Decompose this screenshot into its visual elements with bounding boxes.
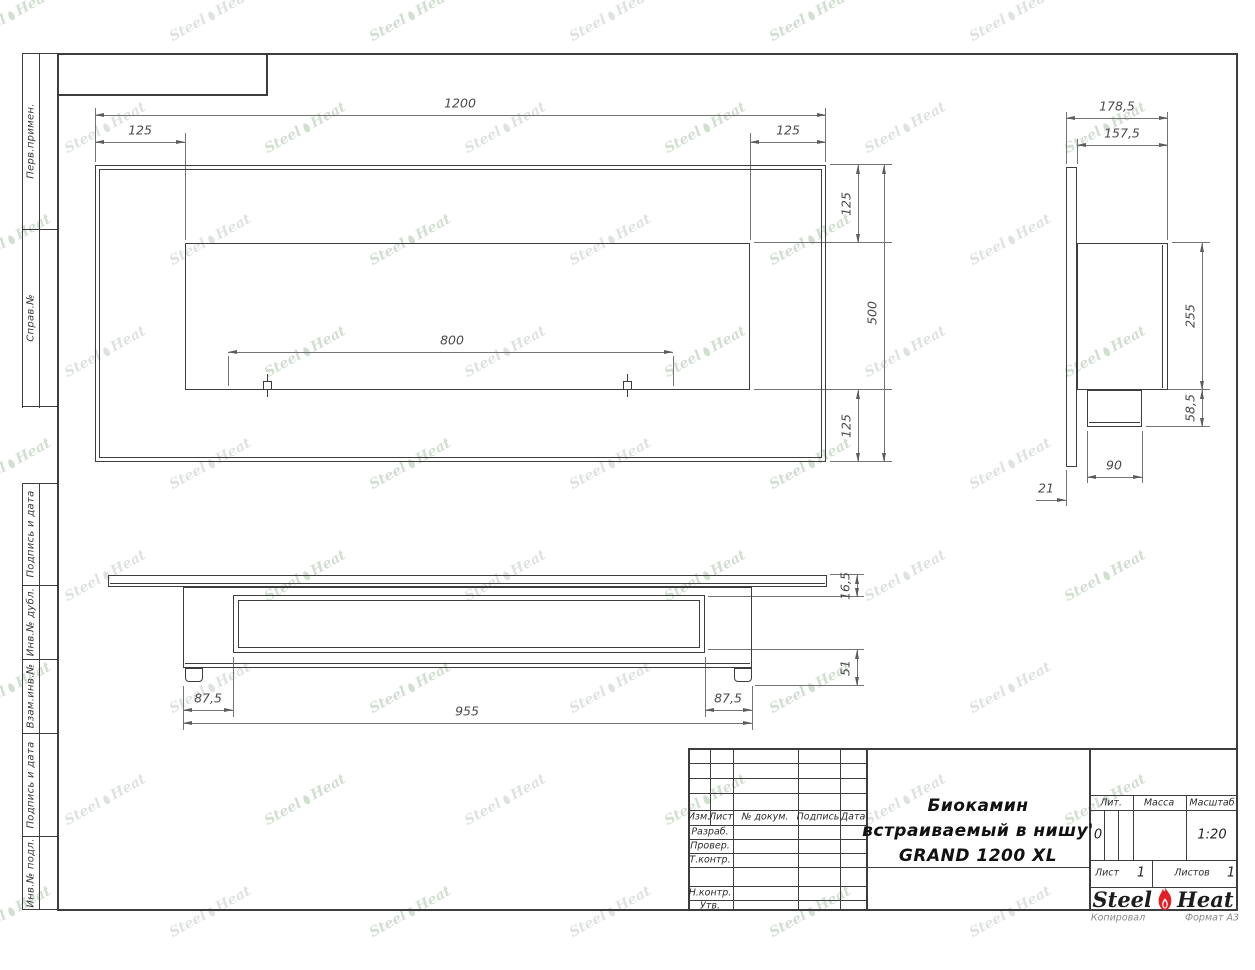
watermark: SteelHeat (662, 99, 749, 157)
watermark-flame-icon (899, 792, 913, 807)
watermark-flame-icon (1004, 904, 1018, 919)
tb-role-razrab: Разраб. (691, 827, 728, 838)
drawing-line (1090, 810, 1238, 811)
watermark-flame-icon (604, 8, 618, 23)
watermark: SteelHeat (967, 883, 1054, 941)
drawing-line (22, 53, 23, 408)
watermark-text-steel: Steel (767, 908, 809, 941)
dimension-arrow (1200, 390, 1204, 399)
flame-icon (1155, 886, 1174, 912)
tb-role-nkontr: Н.контр. (689, 888, 732, 899)
watermark-text-heat: Heat (908, 99, 949, 131)
drawing-line (733, 748, 734, 911)
watermark-text-heat: Heat (508, 771, 549, 803)
margin-label-vzam-inv: Взам.инв.№ (26, 664, 37, 729)
extension-line (1172, 242, 1210, 243)
margin-label-inv-dubl: Инв.№ дубл. (26, 588, 37, 657)
drawing-line (688, 867, 1090, 868)
dimension-line (183, 723, 752, 724)
drawing-line (57, 53, 1238, 55)
tb-sheets-value: 1 (1227, 866, 1235, 881)
margin-label-perv-primen: Перв.примен. (26, 103, 37, 179)
watermark-flame-icon (699, 120, 713, 135)
watermark-text-heat: Heat (1108, 547, 1149, 579)
drawing-line (22, 406, 58, 407)
watermark-flame-icon (4, 232, 18, 247)
dimension-label: 500 (865, 301, 880, 325)
dimension-arrow (1133, 475, 1142, 479)
watermark-text-heat: Heat (13, 435, 54, 467)
watermark-text-steel: Steel (1062, 572, 1104, 605)
drawing-line (22, 483, 58, 484)
logo-text-steel: Steel (1092, 887, 1152, 912)
watermark-text-steel: Steel (367, 684, 409, 717)
watermark-flame-icon (4, 904, 18, 919)
watermark-flame-icon (404, 680, 418, 695)
watermark-text-steel: Steel (967, 12, 1009, 45)
tb-sheet-label: Лист (1095, 868, 1119, 879)
dimension-line (1066, 118, 1168, 119)
watermark-text-steel: Steel (167, 12, 209, 45)
tb-mass-label: Масса (1144, 798, 1174, 809)
watermark: SteelHeat (967, 211, 1054, 269)
drawing-line (39, 53, 40, 408)
watermark-text-heat: Heat (1013, 0, 1054, 19)
watermark-text-steel: Steel (862, 572, 904, 605)
watermark: SteelHeat (862, 547, 949, 605)
extension-line (1066, 470, 1067, 506)
drawing-line (1104, 810, 1105, 860)
tb-header-izm: Изм. (688, 812, 710, 823)
drawing-line (22, 585, 58, 586)
part-outline (263, 381, 272, 390)
tb-lit-value: 0 (1094, 828, 1102, 843)
watermark-text-steel: Steel (62, 796, 104, 829)
dimension-arrow (224, 708, 233, 712)
drawing-line (22, 836, 58, 837)
watermark-text-heat: Heat (1013, 659, 1054, 691)
watermark: SteelHeat (367, 0, 454, 45)
watermark-text-heat: Heat (708, 771, 749, 803)
drawing-sheet: SteelHeatSteelHeatSteelHeatSteelHeatStee… (0, 0, 1255, 970)
dimension-arrow (95, 140, 104, 144)
dimension-label: 87,5 (194, 691, 222, 706)
watermark-text-heat: Heat (13, 0, 54, 19)
watermark-text-heat: Heat (108, 771, 149, 803)
dimension-arrow (855, 677, 859, 686)
dimension-label: 1200 (444, 96, 476, 111)
watermark-text-heat: Heat (813, 0, 854, 19)
watermark-text-steel: Steel (567, 684, 609, 717)
drawing-line (22, 909, 58, 910)
drawing-line (22, 659, 58, 660)
part-outline (1087, 390, 1142, 427)
watermark: SteelHeat (1062, 547, 1149, 605)
watermark-flame-icon (499, 120, 513, 135)
margin-label-inv-podl: Инв.№ подл. (26, 838, 37, 907)
watermark-text-steel: Steel (767, 12, 809, 45)
dimension-arrow (856, 390, 860, 399)
dimension-arrow (1159, 116, 1168, 120)
dimension-line (858, 165, 859, 243)
drawing-line (840, 748, 841, 911)
dimension-arrow (817, 113, 826, 117)
part-outline (623, 381, 632, 390)
drawing-line (266, 53, 268, 96)
drawing-line (1152, 860, 1153, 887)
watermark-flame-icon (204, 8, 218, 23)
watermark-text-steel: Steel (0, 460, 9, 493)
watermark-flame-icon (99, 792, 113, 807)
dimension-arrow (855, 588, 859, 597)
drawing-line (57, 53, 59, 911)
watermark: SteelHeat (967, 0, 1054, 45)
watermark-text-steel: Steel (0, 684, 9, 717)
dimension-arrow (1159, 143, 1168, 147)
dimension-line (884, 165, 885, 462)
watermark: SteelHeat (862, 99, 949, 157)
watermark-text-steel: Steel (1062, 124, 1104, 157)
tb-role-tkontr: Т.контр. (689, 855, 730, 866)
dimension-arrow (1087, 475, 1096, 479)
extension-line (1167, 112, 1168, 240)
watermark-flame-icon (1004, 232, 1018, 247)
watermark-flame-icon (1099, 568, 1113, 583)
watermark: SteelHeat (0, 0, 54, 45)
watermark-text-steel: Steel (567, 460, 609, 493)
watermark-text-heat: Heat (1013, 211, 1054, 243)
dimension-label: 255 (1183, 304, 1198, 328)
drawing-line (1090, 860, 1238, 861)
extension-line (755, 685, 864, 686)
tb-sheet-value: 1 (1137, 866, 1145, 881)
watermark-text-steel: Steel (367, 460, 409, 493)
dimension-label: 21 (1038, 481, 1054, 496)
dimension-arrow (750, 140, 759, 144)
watermark: SteelHeat (167, 883, 254, 941)
drawing-line (1236, 53, 1238, 911)
extension-line (752, 686, 753, 730)
dimension-line (858, 390, 859, 462)
dimension-arrow (817, 140, 826, 144)
watermark: SteelHeat (262, 99, 349, 157)
dimension-arrow (183, 708, 192, 712)
part-outline (1066, 167, 1077, 467)
watermark: SteelHeat (567, 0, 654, 45)
dimension-label: 178,5 (1099, 99, 1135, 114)
watermark-flame-icon (299, 120, 313, 135)
dimension-arrow (1077, 143, 1086, 147)
watermark-text-steel: Steel (862, 124, 904, 157)
tb-header-ndokum: № докум. (742, 812, 789, 823)
watermark-text-heat: Heat (13, 211, 54, 243)
watermark-text-steel: Steel (367, 908, 409, 941)
watermark: SteelHeat (0, 211, 54, 269)
watermark: SteelHeat (967, 659, 1054, 717)
dimension-line (1077, 145, 1168, 146)
watermark: SteelHeat (767, 0, 854, 45)
dimension-arrow (743, 708, 752, 712)
drawing-line (22, 53, 58, 54)
dimension-arrow (1066, 116, 1075, 120)
watermark-text-steel: Steel (967, 236, 1009, 269)
watermark-text-steel: Steel (567, 12, 609, 45)
dimension-arrow (855, 575, 859, 584)
drawing-line (688, 778, 868, 779)
part-outline (734, 668, 752, 682)
drawing-line (1186, 795, 1187, 860)
part-outline (185, 243, 750, 390)
dimension-arrow (228, 350, 237, 354)
footer-copied: Копировал (1091, 913, 1145, 924)
watermark-flame-icon (4, 456, 18, 471)
watermark-text-steel: Steel (167, 460, 209, 493)
watermark-text-steel: Steel (262, 124, 304, 157)
part-outline (1077, 243, 1168, 390)
dimension-arrow (856, 453, 860, 462)
watermark-text-heat: Heat (613, 0, 654, 19)
watermark-flame-icon (99, 120, 113, 135)
dimension-label: 125 (776, 123, 800, 138)
tb-role-utv: Утв. (700, 901, 720, 912)
drawing-line (22, 733, 58, 734)
watermark-flame-icon (1004, 8, 1018, 23)
watermark: SteelHeat (262, 771, 349, 829)
watermark-text-steel: Steel (167, 908, 209, 941)
watermark-flame-icon (899, 344, 913, 359)
dimension-arrow (882, 165, 886, 174)
dimension-label: 955 (455, 704, 479, 719)
dimension-arrow (183, 721, 192, 725)
watermark-text-steel: Steel (567, 908, 609, 941)
part-outline (238, 600, 700, 648)
dimension-arrow (1200, 381, 1204, 390)
watermark-text-steel: Steel (767, 684, 809, 717)
dimension-arrow (705, 708, 714, 712)
watermark-flame-icon (899, 120, 913, 135)
watermark-text-steel: Steel (967, 908, 1009, 941)
tb-lit-label: Лит. (1100, 798, 1122, 809)
dimension-arrow (856, 234, 860, 243)
watermark: SteelHeat (0, 435, 54, 493)
drawing-line (22, 483, 23, 910)
watermark-flame-icon (804, 904, 818, 919)
watermark-flame-icon (204, 904, 218, 919)
watermark-text-steel: Steel (262, 796, 304, 829)
dimension-label: 800 (440, 333, 464, 348)
tb-scale-label: Масштаб (1189, 798, 1234, 809)
watermark: SteelHeat (862, 323, 949, 381)
watermark-text-steel: Steel (462, 124, 504, 157)
watermark-flame-icon (804, 8, 818, 23)
watermark-text-steel: Steel (0, 12, 9, 45)
watermark-text-heat: Heat (908, 547, 949, 579)
watermark-flame-icon (4, 8, 18, 23)
dimension-arrow (176, 140, 185, 144)
watermark-flame-icon (804, 680, 818, 695)
drawing-line (22, 229, 58, 230)
doc-title-line-3: GRAND 1200 XL (899, 846, 1057, 866)
dimension-line (95, 142, 185, 143)
tb-header-podpis: Подпись (797, 812, 840, 823)
dimension-arrow (1200, 418, 1204, 427)
drawing-line (688, 748, 1238, 750)
dimension-label: 16,5 (838, 572, 853, 600)
dimension-line (1202, 243, 1203, 390)
watermark-flame-icon (899, 568, 913, 583)
doc-title-line-1: Биокамин (927, 796, 1028, 816)
tb-header-list: Лист (709, 812, 733, 823)
watermark-flame-icon (299, 792, 313, 807)
watermark-text-heat: Heat (908, 323, 949, 355)
dimension-arrow (855, 650, 859, 659)
dimension-arrow (856, 165, 860, 174)
watermark-text-heat: Heat (413, 0, 454, 19)
watermark-text-steel: Steel (967, 460, 1009, 493)
dimension-arrow (1200, 243, 1204, 252)
watermark: SteelHeat (167, 0, 254, 45)
watermark-flame-icon (604, 680, 618, 695)
steelheat-logo: Steel Heat (1092, 886, 1233, 912)
dimension-line (95, 115, 826, 116)
dimension-line (750, 142, 826, 143)
watermark: SteelHeat (367, 883, 454, 941)
dimension-label: 58,5 (1183, 394, 1198, 422)
dimension-arrow (882, 453, 886, 462)
margin-label-podpis-data-2: Подпись и дата (26, 741, 37, 828)
drawing-line (39, 483, 40, 910)
drawing-line (1090, 795, 1238, 796)
dimension-label: 125 (839, 192, 854, 216)
extension-line (1142, 431, 1143, 483)
watermark-flame-icon (404, 904, 418, 919)
dimension-label: 90 (1106, 458, 1122, 473)
footer-format: Формат А3 (1185, 913, 1239, 924)
tb-scale-value: 1:20 (1197, 828, 1226, 843)
tb-sheets-label: Листов (1174, 868, 1210, 879)
logo-text-heat: Heat (1177, 887, 1234, 912)
dimension-label: 125 (839, 414, 854, 438)
watermark-text-steel: Steel (0, 236, 9, 269)
watermark-text-heat: Heat (1013, 435, 1054, 467)
drawing-line (688, 793, 868, 794)
drawing-line (57, 94, 268, 96)
margin-label-sprav-no: Справ.№ (26, 294, 37, 342)
watermark-text-heat: Heat (213, 0, 254, 19)
margin-label-podpis-data-1: Подпись и дата (26, 490, 37, 577)
dimension-label: 125 (128, 123, 152, 138)
watermark-flame-icon (404, 8, 418, 23)
watermark-flame-icon (4, 680, 18, 695)
watermark-text-steel: Steel (367, 12, 409, 45)
part-outline (185, 668, 203, 682)
watermark-flame-icon (604, 904, 618, 919)
dimension-arrow (95, 113, 104, 117)
doc-title-line-2: встраиваемый в нишу' (862, 821, 1094, 841)
drawing-line (1133, 795, 1134, 860)
watermark: SteelHeat (62, 771, 149, 829)
drawing-line (1118, 810, 1119, 860)
watermark-text-steel: Steel (62, 572, 104, 605)
watermark-flame-icon (1004, 456, 1018, 471)
watermark-text-steel: Steel (662, 124, 704, 157)
drawing-line (688, 763, 868, 764)
dimension-arrow (664, 350, 673, 354)
dimension-arrow (743, 721, 752, 725)
dimension-label: 51 (838, 660, 853, 676)
dimension-line (228, 352, 673, 353)
extension-line (1066, 112, 1067, 164)
watermark-text-heat: Heat (308, 771, 349, 803)
dimension-arrow (1057, 498, 1066, 502)
watermark: SteelHeat (567, 883, 654, 941)
dimension-label: 157,5 (1104, 126, 1140, 141)
watermark-text-steel: Steel (767, 460, 809, 493)
watermark-flame-icon (499, 792, 513, 807)
watermark-text-steel: Steel (462, 796, 504, 829)
dimension-label: 87,5 (714, 691, 742, 706)
watermark-flame-icon (1004, 680, 1018, 695)
watermark: SteelHeat (462, 771, 549, 829)
drawing-line (798, 748, 799, 911)
watermark-text-steel: Steel (0, 908, 9, 941)
drawing-line (57, 909, 1238, 911)
part-outline (108, 575, 827, 587)
tb-role-prover: Провер. (690, 841, 729, 852)
watermark-text-steel: Steel (967, 684, 1009, 717)
